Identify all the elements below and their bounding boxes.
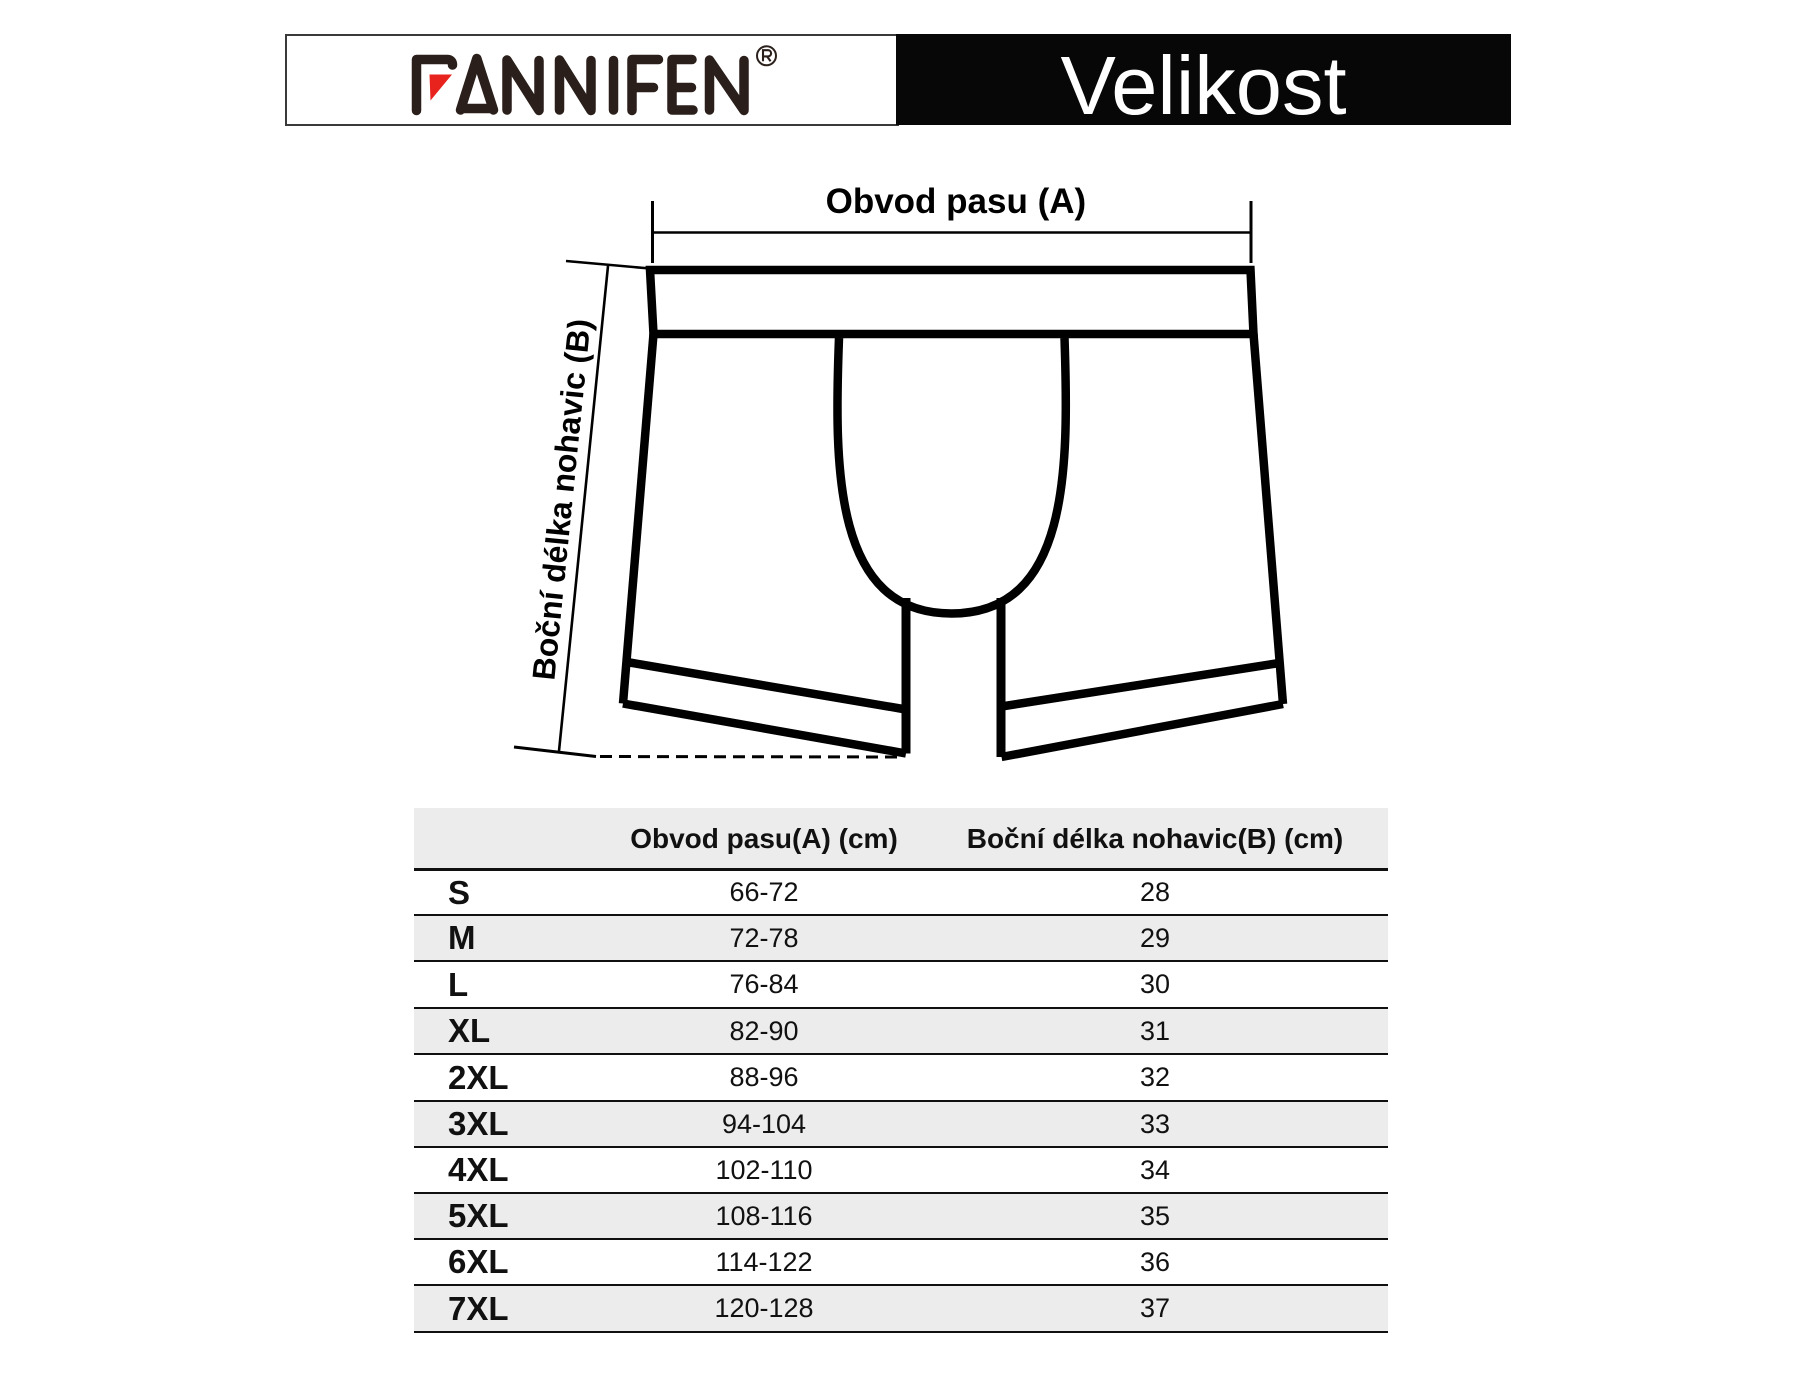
svg-text:Obvod pasu (A): Obvod pasu (A) (826, 182, 1087, 221)
svg-text:Boční délka nohavic (B): Boční délka nohavic (B) (525, 317, 597, 682)
